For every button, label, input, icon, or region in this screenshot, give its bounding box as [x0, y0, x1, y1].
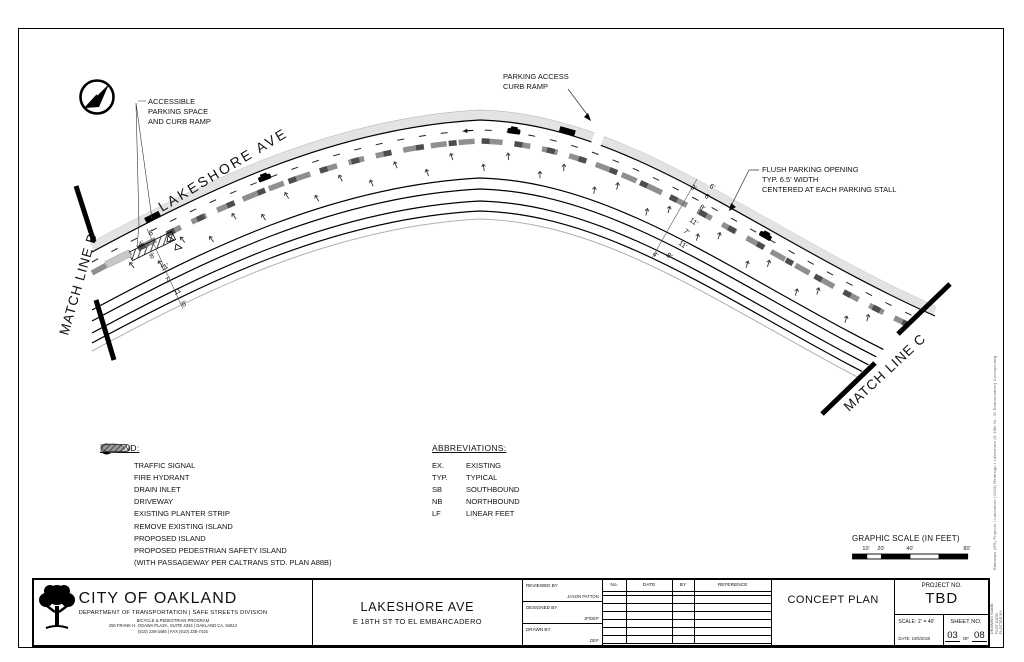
designed-by-row: DESIGNED BY JP/DEP [523, 602, 602, 624]
reviewed-by-label: REVIEWED BY [526, 583, 558, 588]
agency-name: CITY OF OAKLAND [79, 590, 268, 608]
curb-line [92, 120, 935, 316]
parked-car-symbol [507, 126, 521, 135]
revision-cell [673, 620, 695, 628]
roadway [92, 110, 935, 415]
revision-cell [673, 612, 695, 620]
term: LINEAR FEET [466, 509, 514, 518]
match-line-c: MATCH LINE C [822, 284, 950, 414]
abbr-item: EX. EXISTING [432, 459, 612, 471]
legend-note: (WITH PASSAGEWAY PER CALTRANS STD. PLAN … [134, 557, 420, 569]
abbr-item: SB SOUTHBOUND [432, 483, 612, 495]
legend-label: DRAIN INLET [134, 485, 181, 494]
graphic-scale: GRAPHIC SCALE (IN FEET) 10' 20' 40' 80' [852, 534, 1002, 567]
term: NORTHBOUND [466, 497, 520, 506]
parked-car-symbol [257, 171, 272, 182]
dim-label: 8' [181, 300, 189, 309]
callout-text: TYP. 6.5' WIDTH [762, 175, 818, 184]
agency-department: DEPARTMENT OF TRANSPORTATION | SAFE STRE… [79, 610, 268, 616]
scale-tick: 40' [906, 546, 913, 552]
dim-label: 7' [682, 228, 690, 237]
project-subtitle: E 18TH ST TO EL EMBARCADERO [353, 617, 482, 626]
graphic-scale-label: GRAPHIC SCALE (IN FEET) [852, 534, 1002, 543]
lane-arrow [506, 153, 511, 160]
abbr: NB [432, 497, 466, 506]
project-no-value: TBD [895, 590, 988, 607]
revision-cell [603, 628, 627, 636]
legend: LEGEND: TS TRAFFIC SIGNAL FIRE HYDRANT [100, 443, 420, 569]
lane-arrow [538, 171, 542, 178]
lane-arrow [562, 164, 566, 171]
scale-value: 1" = 40' [918, 619, 935, 625]
scale-tick: 20' [877, 546, 884, 552]
callout-text: CENTERED AT EACH PARKING STALL [762, 185, 896, 194]
revision-cell [673, 588, 695, 596]
legend-item: DRIVEWAY [100, 496, 420, 508]
lane-arrow [694, 233, 700, 241]
reviewed-by-name: JASON PATTON [567, 594, 598, 599]
lane-arrow [337, 174, 344, 182]
plot-stamp: DRAWING NAME: PLOT DATE: PLOTTED BY: [990, 572, 1004, 634]
legend-label: PROPOSED ISLAND [134, 534, 206, 543]
revision-cell [627, 596, 673, 604]
sheet-total-value: 08 [972, 630, 987, 642]
plan-type: CONCEPT PLAN [772, 594, 894, 606]
dim-label: 11' [688, 217, 699, 228]
legend-item: FIRE HYDRANT [100, 471, 420, 483]
legend-item: DRAIN INLET [100, 483, 420, 495]
sheet-no-value: 03 [945, 630, 960, 642]
sheet-no-label: SHEET NO. [944, 619, 987, 625]
callout-text: PARKING SPACE [148, 107, 208, 116]
abbr: LF [432, 509, 466, 518]
revision-cell [695, 636, 771, 644]
lane-arrow [230, 212, 237, 220]
drawn-by-row: DRAWN BY DEP [523, 624, 602, 645]
legend-label: TRAFFIC SIGNAL [134, 461, 195, 470]
sidewalk-band [92, 115, 935, 311]
revision-cell [673, 604, 695, 612]
scale-tick: 10' [862, 546, 869, 552]
lane-arrow [449, 153, 455, 161]
revision-cell [603, 604, 627, 612]
revision-cell [603, 636, 627, 644]
lane-arrow [208, 235, 215, 243]
date-label: DATE: [898, 636, 910, 641]
lane-line-3 [92, 201, 935, 397]
abbr-item: NB NORTHBOUND [432, 496, 612, 508]
callout-text: CURB RAMP [503, 82, 548, 91]
dim-label: 8' [665, 252, 673, 261]
ped-safety-island-icon [100, 443, 132, 453]
callout-flush-parking: FLUSH PARKING OPENING TYP. 6.5' WIDTH CE… [729, 165, 896, 211]
project-number-section: PROJECT NO. TBD SCALE: 1" = 40' DATE: 10… [895, 580, 988, 645]
lane-arrow [314, 194, 321, 202]
lane-arrow [283, 192, 290, 200]
title-block: CITY OF OAKLAND DEPARTMENT OF TRANSPORTA… [32, 578, 990, 647]
personnel-section: REVIEWED BY JASON PATTON DESIGNED BY JP/… [523, 580, 603, 645]
abbreviations-title: ABBREVIATIONS: [432, 443, 612, 453]
sheet-of-label: OF [963, 636, 969, 642]
revision-cell [695, 628, 771, 636]
revision-cell [627, 636, 673, 644]
lane-arrow [368, 179, 375, 187]
revision-table: No. DATE BY REFERENCE [603, 580, 772, 645]
designed-by-label: DESIGNED BY [526, 605, 557, 610]
revision-cell [627, 620, 673, 628]
oakland-tree-logo [34, 580, 80, 632]
plan-type-section: CONCEPT PLAN [772, 580, 895, 645]
plan-sheet: 6' 4' 8' 11' 7' 11' 8' 3' 6' 6' 8' 11' 7… [0, 0, 1024, 662]
lane-arrow [744, 260, 750, 268]
lane-arrow [765, 260, 771, 268]
legend-item: PROPOSED PEDESTRIAN SAFETY ISLAND [100, 544, 420, 556]
term: TYPICAL [466, 473, 497, 482]
revision-cell [627, 588, 673, 596]
revision-cell [695, 612, 771, 620]
term: SOUTHBOUND [466, 485, 519, 494]
revision-cell [673, 596, 695, 604]
lane-arrow [865, 314, 871, 322]
callout-text: AND CURB RAMP [148, 117, 211, 126]
drawn-by-label: DRAWN BY [526, 627, 551, 632]
match-line-b: MATCH LINE B [56, 186, 114, 360]
lane-arrow [815, 287, 821, 295]
scale-tick: 80' [963, 546, 970, 552]
dim-label: 6' [148, 229, 156, 238]
term: EXISTING [466, 461, 501, 470]
project-title-section: LAKESHORE AVE E 18TH ST TO EL EMBARCADER… [313, 580, 523, 645]
legend-item: PROPOSED ISLAND [100, 532, 420, 544]
legend-label: PROPOSED PEDESTRIAN SAFETY ISLAND [134, 546, 287, 555]
revision-cell [627, 604, 673, 612]
lane-arrow [666, 206, 672, 214]
date-value: 10/5/2020 [912, 636, 931, 641]
revision-cell [695, 604, 771, 612]
lane-arrow [592, 187, 597, 194]
dim-label: 11' [173, 287, 184, 297]
north-arrow-icon [81, 81, 114, 114]
abbr: TYP. [432, 473, 466, 482]
sheet-no-cell: SHEET NO. 03 OF 08 [944, 615, 987, 645]
callout-text: ACCESSIBLE [148, 97, 195, 106]
revision-cell [673, 628, 695, 636]
legend-label: FIRE HYDRANT [134, 473, 189, 482]
existing-island-remnant [105, 250, 131, 268]
drawn-by-name: DEP [590, 638, 599, 643]
revision-cell [603, 588, 627, 596]
legend-item: REMOVE EXISTING ISLAND [100, 520, 420, 532]
revision-cell [603, 596, 627, 604]
callout-text: FLUSH PARKING OPENING [762, 165, 859, 174]
abbr-item: TYP. TYPICAL [432, 471, 612, 483]
abbr-item: LF LINEAR FEET [432, 508, 612, 520]
revision-cell [695, 596, 771, 604]
agency-section: CITY OF OAKLAND DEPARTMENT OF TRANSPORTA… [34, 580, 313, 645]
callout-text: PARKING ACCESS [503, 72, 569, 81]
revision-cell [695, 620, 771, 628]
match-line-c-label: MATCH LINE C [841, 331, 929, 414]
abbr: SB [432, 485, 466, 494]
lane-line-2 [92, 189, 935, 385]
lane-arrow [128, 261, 136, 269]
lane-arrow [716, 232, 722, 240]
match-line-b-label: MATCH LINE B [56, 231, 100, 337]
lane-arrow [615, 182, 620, 190]
legend-label: DRIVEWAY [134, 497, 173, 506]
dim-label: 8' [149, 252, 157, 261]
lane-arrow [843, 316, 849, 324]
abbreviations: ABBREVIATIONS: EX. EXISTING TYP. TYPICAL… [432, 443, 612, 520]
project-title: LAKESHORE AVE [361, 600, 475, 614]
lane-arrow [644, 208, 649, 216]
legend-title: LEGEND: [100, 443, 420, 453]
agency-phone: (510) 238-3466 | FAX (510) 238-7415 [79, 629, 268, 635]
flush-opening-dash-line [92, 130, 935, 326]
revision-cell [603, 612, 627, 620]
lane-arrow [393, 161, 399, 169]
legend-label: REMOVE EXISTING ISLAND [134, 522, 233, 531]
designed-by-name: JP/DEP [584, 616, 599, 621]
travel-direction-arrow [464, 129, 473, 133]
street-name-label: LAKESHORE AVE [155, 125, 290, 215]
lane-arrow [179, 236, 186, 244]
reviewed-by-row: REVIEWED BY JASON PATTON [523, 580, 602, 602]
revision-cell [627, 628, 673, 636]
legend-label: EXISTING PLANTER STRIP [134, 509, 230, 518]
abbr: EX. [432, 461, 466, 470]
lane-arrow [481, 164, 486, 172]
legend-item: TS TRAFFIC SIGNAL [100, 459, 420, 471]
lane-arrow [424, 169, 430, 177]
lane-arrow [260, 213, 267, 221]
legend-item: EXISTING PLANTER STRIP [100, 508, 420, 520]
drawing-file-path: Bikeways (DR) Projects / Lakeshore (2020… [992, 210, 1002, 570]
scale-cell: SCALE: 1" = 40' DATE: 10/5/2020 [895, 615, 944, 645]
revision-cell [603, 620, 627, 628]
callout-accessible-parking: ACCESSIBLE PARKING SPACE AND CURB RAMP [136, 97, 211, 247]
revision-cell [673, 636, 695, 644]
scale-bar [852, 553, 972, 561]
scale-label: SCALE: [898, 619, 916, 625]
project-no-label: PROJECT NO. [895, 583, 988, 589]
revision-cell [695, 588, 771, 596]
revision-cell [627, 612, 673, 620]
dim-label: 6' [703, 193, 711, 202]
lane-arrow [793, 288, 799, 296]
plot-stamp-line: PLOTTED BY: [999, 572, 1004, 634]
